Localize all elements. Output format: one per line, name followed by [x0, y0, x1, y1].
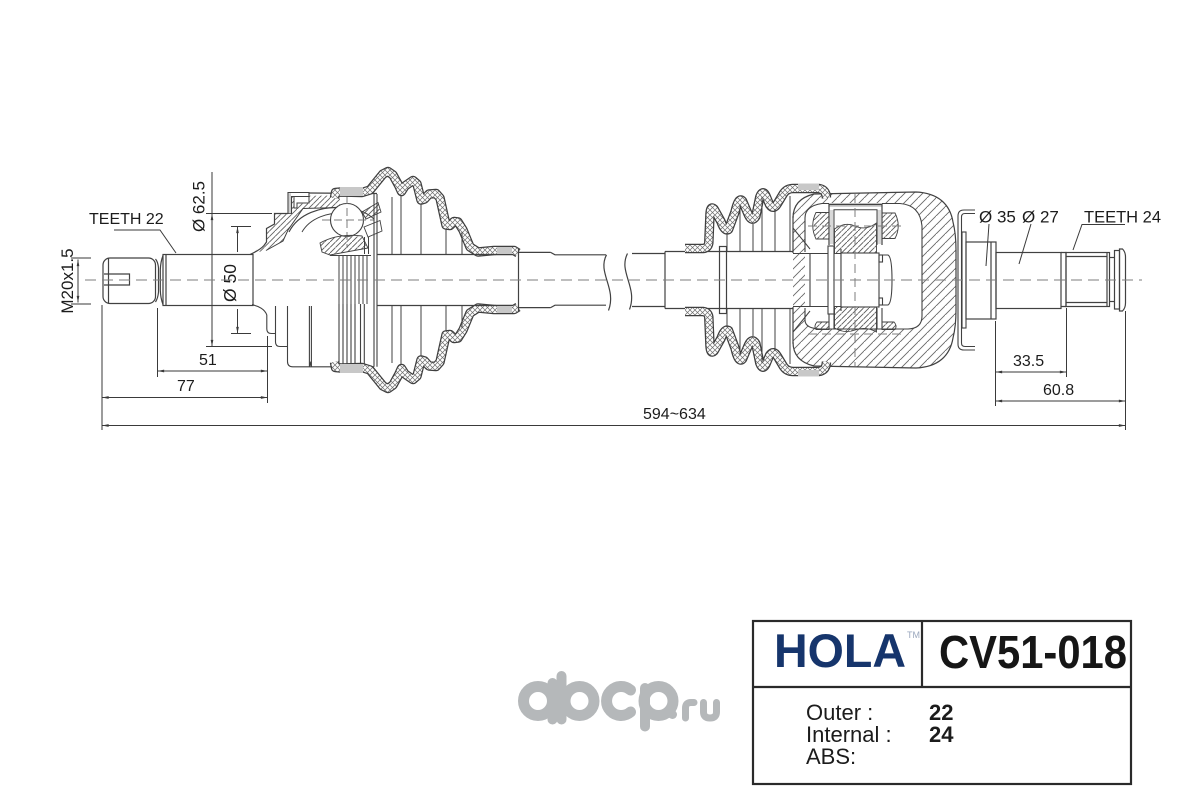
svg-text:Ø 62.5: Ø 62.5	[190, 181, 209, 232]
svg-text:77: 77	[177, 378, 195, 395]
svg-text:24: 24	[929, 722, 954, 747]
svg-text:594~634: 594~634	[643, 406, 706, 423]
svg-text:Ø 27: Ø 27	[1022, 208, 1059, 227]
svg-text:60.8: 60.8	[1043, 382, 1074, 399]
svg-text:CV51-018: CV51-018	[939, 626, 1127, 678]
svg-text:TM: TM	[907, 630, 920, 640]
svg-text:Ø 35: Ø 35	[979, 208, 1016, 227]
svg-text:M20x1.5: M20x1.5	[58, 248, 77, 313]
svg-text:TEETH 24: TEETH 24	[1084, 209, 1161, 227]
svg-text:33.5: 33.5	[1013, 353, 1044, 370]
svg-text:Ø 50: Ø 50	[220, 264, 240, 302]
svg-text:ABS:: ABS:	[806, 744, 856, 769]
svg-text:51: 51	[199, 352, 217, 369]
svg-text:HOLA: HOLA	[774, 624, 906, 677]
svg-text:TEETH 22: TEETH 22	[89, 211, 164, 228]
